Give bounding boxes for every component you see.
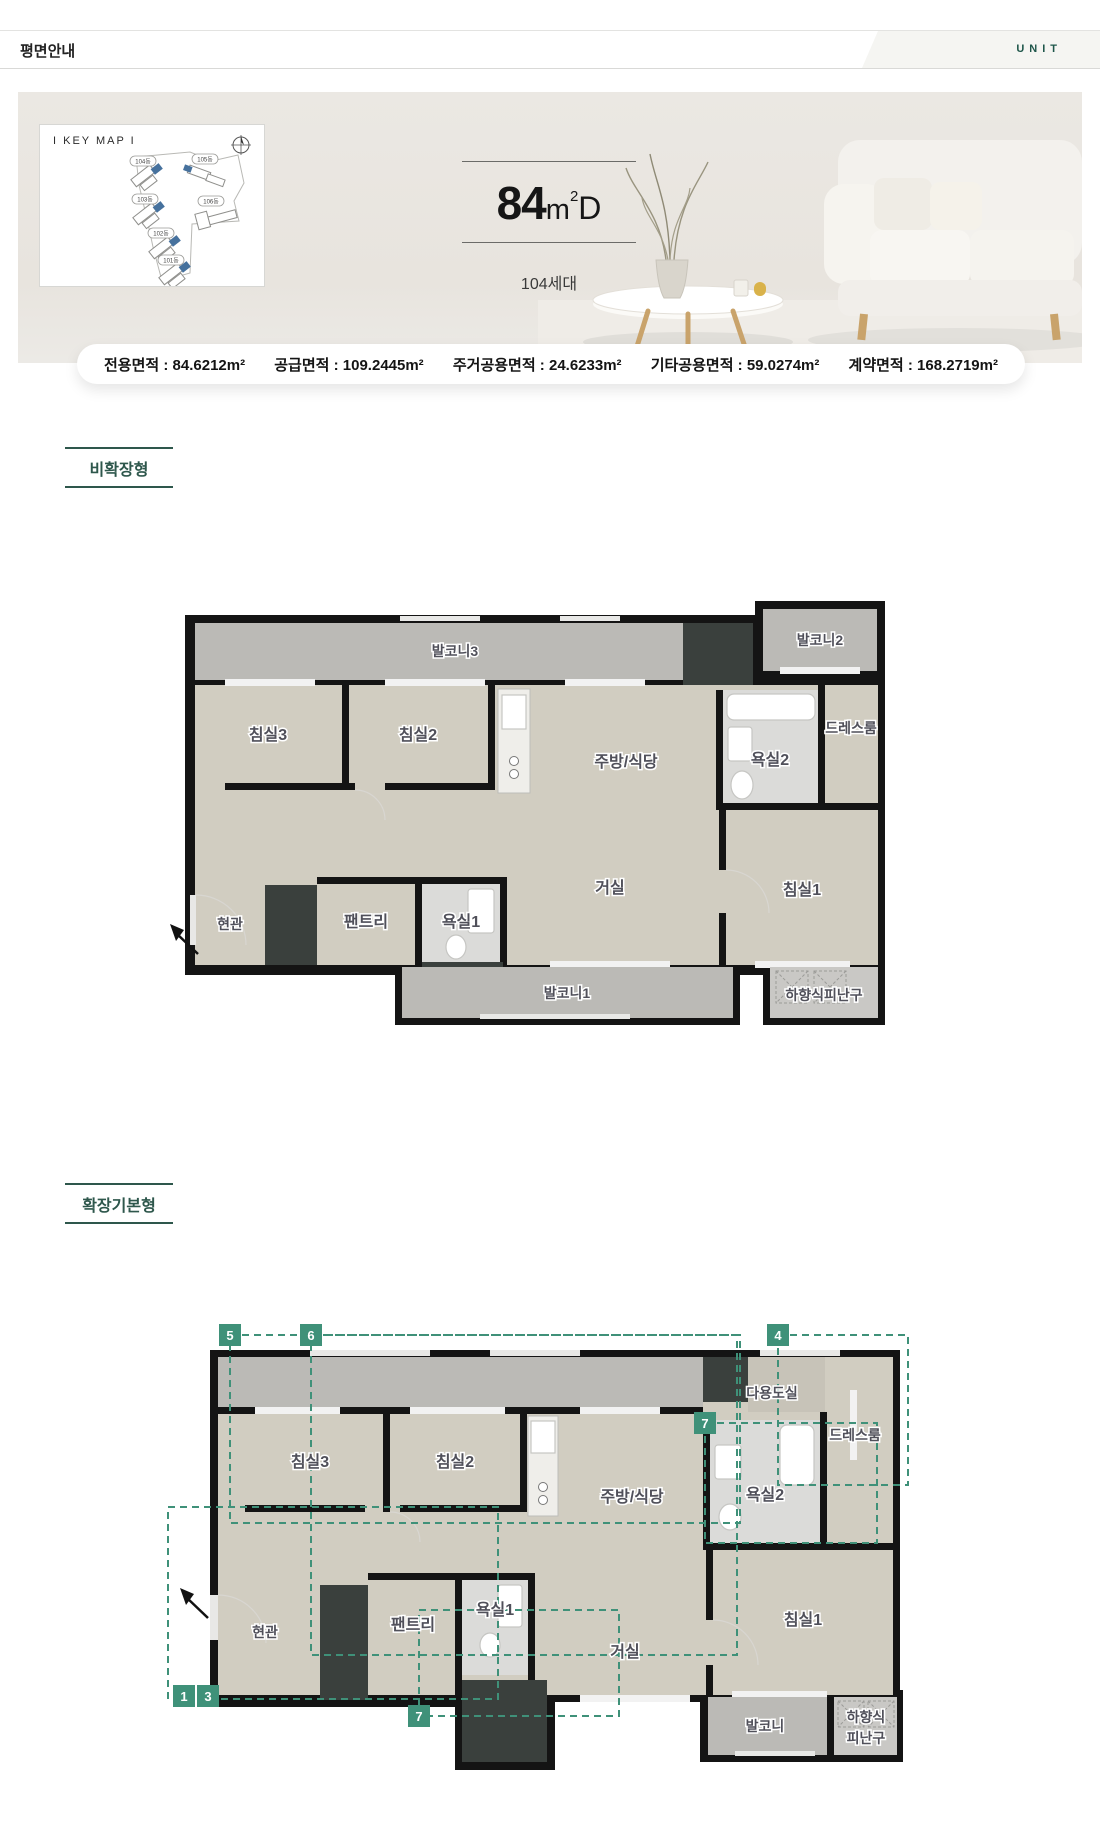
svg-text:7: 7 (701, 1416, 708, 1431)
keymap-svg: 104동 105동 (40, 125, 264, 286)
compass-icon (231, 135, 251, 155)
bathtub-icon (727, 694, 815, 720)
keymap-building-label: 101동 (163, 258, 179, 265)
info-item-contract: 계약면적 : 168.2719m² (849, 354, 998, 375)
expanded-strip (218, 1357, 703, 1407)
room-label-balcony1: 발코니1 (544, 985, 591, 1001)
room-label-living: 거실 (610, 1643, 639, 1661)
room-label-pantry: 팬트리 (391, 1616, 435, 1634)
room-label-entrance: 현관 (252, 1624, 278, 1640)
stove-icon (539, 1483, 548, 1492)
header: 평면안내 UNIT (0, 30, 1100, 69)
unit-households: 104세대 (462, 270, 636, 294)
info-item-exclusive: 전용면적 : 84.6212m² (104, 354, 245, 375)
svg-text:5: 5 (226, 1328, 233, 1343)
room-label-escape: 하향식피난구 (785, 987, 862, 1003)
room-label-balcony3: 발코니3 (432, 643, 479, 659)
keymap-box: I KEY MAP I 104 (39, 124, 265, 287)
kitchen-counter (528, 1416, 558, 1516)
utility-shaft (683, 623, 753, 685)
floor-plan-non-expanded: 발코니3 발코니2 침실3 침실2 주방/식당 욕실2 드레스룸 현관 팬트리 … (170, 555, 900, 1050)
svg-text:1: 1 (180, 1689, 187, 1704)
unit-tag: UNIT (1016, 43, 1062, 55)
hero-banner: I KEY MAP I 104 (18, 92, 1082, 363)
room-label-bedroom3: 침실3 (291, 1452, 329, 1471)
badge-7-top: 7 (694, 1412, 716, 1434)
room-label-pantry: 팬트리 (344, 913, 388, 931)
room-label-entrance: 현관 (217, 916, 243, 932)
bathtub-icon (780, 1425, 814, 1485)
room-label-living: 거실 (595, 879, 624, 897)
badge-5: 5 (219, 1324, 241, 1346)
plant (626, 154, 708, 298)
stove-icon (510, 757, 519, 766)
room-label-bath2: 욕실2 (751, 751, 789, 769)
floor-plan-expanded: 5 6 4 7 1 3 7 다용도실 드레스룸 침실3 침실2 주방/식당 욕실… (160, 1295, 915, 1795)
unit-size-type: D (578, 190, 601, 226)
room-label-balcony2: 발코니2 (797, 632, 844, 648)
stove-icon (539, 1496, 548, 1505)
info-item-supply: 공급면적 : 109.2445m² (274, 354, 423, 375)
room-bath1 (462, 1580, 528, 1675)
entry-arrow-icon (180, 1588, 208, 1618)
svg-text:4: 4 (774, 1328, 782, 1343)
page: 평면안내 UNIT (0, 0, 1100, 1843)
fridge-icon (502, 695, 526, 729)
room-label-bedroom1: 침실1 (784, 1610, 822, 1629)
svg-text:3: 3 (204, 1689, 211, 1704)
escape-hatch-icon (834, 1697, 897, 1755)
room-label-bath1: 욕실1 (476, 1601, 514, 1619)
room-label-bath1: 욕실1 (442, 913, 480, 931)
room-label-escape-line2: 피난구 (847, 1730, 886, 1746)
badge-4: 4 (767, 1324, 789, 1346)
unit-title-block: 84m2D (462, 161, 636, 243)
room-label-balcony: 발코니 (746, 1718, 785, 1734)
toilet-icon (446, 935, 466, 959)
header-accent-shape (862, 31, 1100, 68)
keymap-building-106: 106동 (195, 196, 238, 230)
badge-1: 1 (173, 1685, 195, 1707)
utility-shaft (265, 885, 317, 965)
room-label-escape-line1: 하향식 (847, 1709, 886, 1725)
info-item-shared-residential: 주거공용면적 : 24.6233m² (453, 354, 622, 375)
keymap-building-label: 104동 (135, 159, 151, 166)
keymap-building-label: 102동 (153, 231, 169, 238)
keymap-building-label: 106동 (203, 199, 219, 206)
room-label-bedroom2: 침실2 (436, 1452, 474, 1471)
badge-7-bottom: 7 (408, 1705, 430, 1727)
utility-shaft (320, 1585, 368, 1700)
keymap-building-104: 104동 (130, 156, 167, 193)
badge-6: 6 (300, 1324, 322, 1346)
room-label-kitchen: 주방/식당 (594, 753, 658, 771)
page-title: 평면안내 (20, 40, 75, 61)
section-label-expanded: 확장기본형 (65, 1183, 173, 1224)
keymap-building-label: 103동 (137, 197, 153, 204)
keymap-building-101: 101동 (158, 255, 195, 286)
utility-shaft (703, 1357, 748, 1402)
room-label-kitchen: 주방/식당 (600, 1488, 664, 1506)
svg-text:6: 6 (307, 1328, 314, 1343)
kitchen-counter (498, 689, 530, 793)
keymap-building-label: 105동 (197, 157, 213, 164)
info-item-shared-other: 기타공용면적 : 59.0274m² (651, 354, 820, 375)
fridge-icon (531, 1421, 555, 1453)
room-label-bedroom2: 침실2 (399, 725, 437, 744)
sink-icon (728, 727, 752, 761)
room-label-bath2: 욕실2 (746, 1486, 784, 1504)
room-label-bedroom1: 침실1 (783, 880, 821, 899)
badge-3: 3 (197, 1685, 219, 1707)
unit-size-number: 84 (497, 177, 546, 229)
room-label-dressroom: 드레스룸 (825, 720, 877, 736)
keymap-building-103: 103동 (132, 194, 169, 231)
unit-size-m: m (546, 194, 570, 226)
svg-text:7: 7 (415, 1709, 422, 1724)
room-label-utility: 다용도실 (746, 1385, 798, 1401)
stove-icon (510, 770, 519, 779)
room-label-bedroom3: 침실3 (249, 725, 287, 744)
utility-shaft (462, 1680, 547, 1762)
section-label-non-expanded: 비확장형 (65, 447, 173, 488)
area-info-bar: 전용면적 : 84.6212m² 공급면적 : 109.2445m² 주거공용면… (77, 344, 1025, 384)
room-label-dressroom: 드레스룸 (829, 1427, 881, 1443)
toilet-icon (731, 771, 753, 799)
